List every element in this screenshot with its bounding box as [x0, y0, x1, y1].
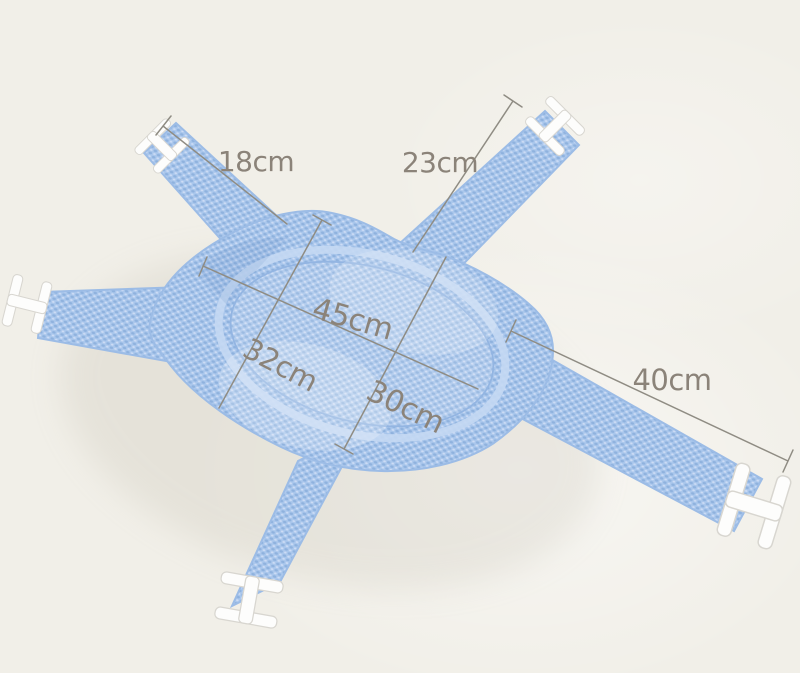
dimension-label-top-right-strap: 23cm: [402, 146, 478, 179]
bath-net-product-image: 18cm 23cm 45cm 32cm 30cm 40cm: [0, 0, 800, 673]
dimension-label-top-left-strap: 18cm: [218, 145, 294, 178]
dimension-label-right-strap: 40cm: [632, 363, 711, 397]
product-photo-stage: 18cm 23cm 45cm 32cm 30cm 40cm: [0, 0, 800, 673]
